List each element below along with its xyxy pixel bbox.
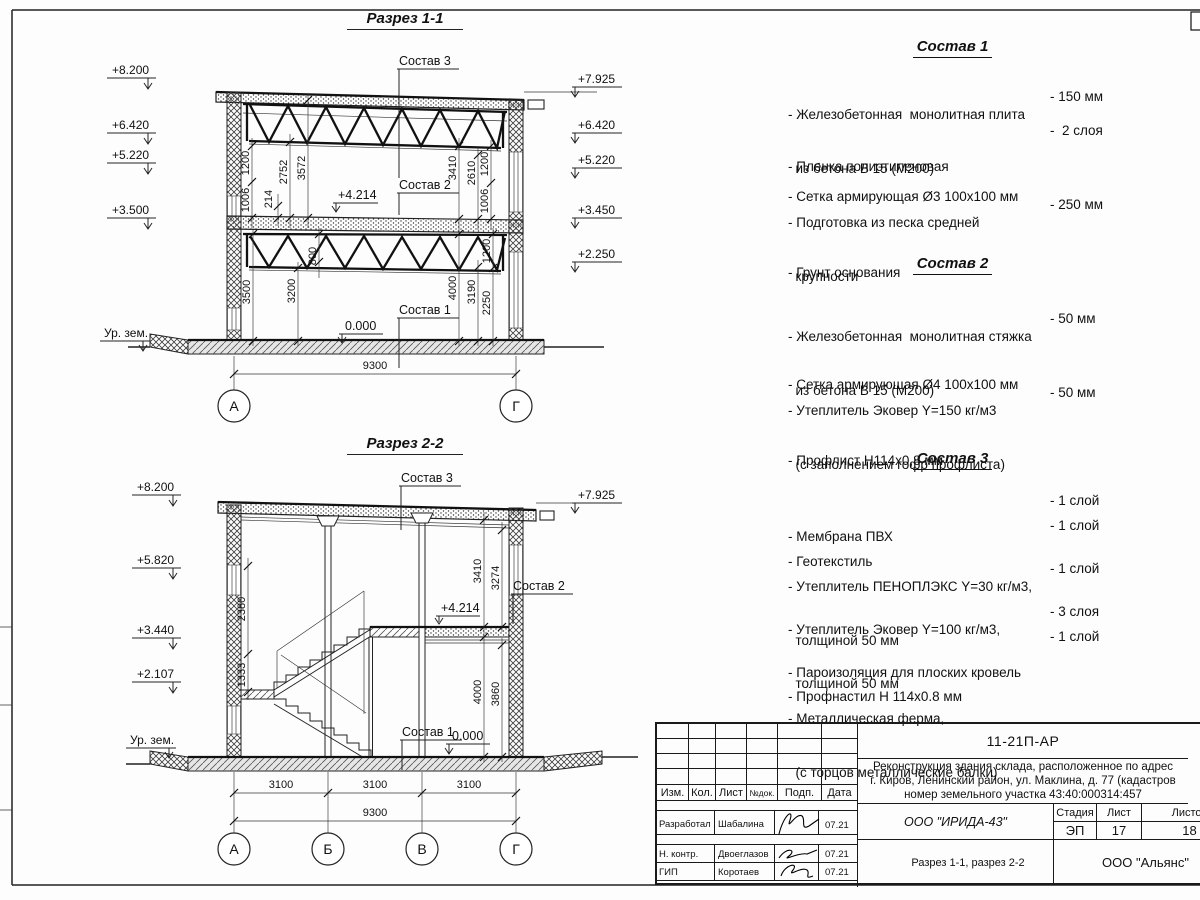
dim-label: 3500 xyxy=(241,280,253,304)
callout-sostav-2: Состав 2 xyxy=(399,178,451,192)
tb-col-kol: Кол. xyxy=(689,785,716,801)
elevation-mark: +5.820 xyxy=(137,553,174,567)
tb-col-list: Лист xyxy=(716,785,747,801)
tb-doc-number: 11-21П-АР xyxy=(858,724,1188,759)
tb-date-1: 07.21 xyxy=(819,811,857,835)
tb-sheet-title: Разрез 1-1, разрез 2-2 xyxy=(858,840,1054,885)
tb-role-2: Н. контр. xyxy=(657,845,715,863)
elevation-mark: +2.250 xyxy=(578,247,615,261)
title-block: Изм. Кол. Лист №док. Подп. Дата Разработ… xyxy=(655,722,1200,885)
axis-bubble-g: Г xyxy=(512,841,520,857)
tb-company: ООО "Альянс" xyxy=(1054,840,1200,885)
elevation-mark: +8.200 xyxy=(137,480,174,494)
dim-label: 2250 xyxy=(481,291,493,315)
signature-1 xyxy=(775,806,821,844)
elevation-mark: +5.220 xyxy=(578,153,615,167)
dim-label: 800 xyxy=(307,247,319,265)
elevation-mark: +2.107 xyxy=(137,667,174,681)
section-1-bottom-dims: 9300 А Г xyxy=(218,356,532,422)
elevation-mark: +3.440 xyxy=(137,623,174,637)
dim-overall: 9300 xyxy=(363,360,387,372)
composition-3-heading: Состав 3 xyxy=(780,450,1125,470)
staircase xyxy=(241,591,371,762)
dim-label: 2752 xyxy=(278,160,290,184)
elevation-mark: +6.420 xyxy=(578,118,615,132)
level-label: +4.214 xyxy=(441,601,480,615)
elevation-mark: +5.220 xyxy=(112,148,149,162)
dim-label: 2610 xyxy=(466,161,478,185)
section-2-floor xyxy=(126,751,638,771)
elevation-mark: +3.450 xyxy=(578,203,615,217)
axis-bubble-g: Г xyxy=(512,398,520,414)
level-label: +4.214 xyxy=(338,188,377,202)
ground-level-label: Ур. зем. xyxy=(130,733,174,747)
section-2-bottom-dims: 3100 3100 3100 9300 А Б В Г xyxy=(218,772,532,865)
dim-label: 3100 xyxy=(269,779,293,791)
dim-label: 4000 xyxy=(447,276,459,300)
axis-bubble-a: А xyxy=(229,398,239,414)
elevation-mark: +7.925 xyxy=(578,72,615,86)
section-1-elevations-left: +8.200 +6.420 +5.220 +3.500 Ур. зем. xyxy=(100,63,156,351)
tb-date-3: 07.21 xyxy=(819,863,857,881)
dim-label: 1200 xyxy=(481,239,493,263)
dim-label: 2380 xyxy=(236,597,248,621)
tb-col-data: Дата xyxy=(822,785,857,801)
elevation-mark: +8.200 xyxy=(112,63,149,77)
tb-stage-value: ЭП xyxy=(1054,822,1097,840)
dim-label: 1006 xyxy=(479,189,491,213)
axis-bubble-a: А xyxy=(229,841,239,857)
tb-name-3: Коротаев xyxy=(715,863,775,881)
elevation-mark: +6.420 xyxy=(112,118,149,132)
section-1-drawing: Разрез 1-1 xyxy=(100,10,622,422)
callout-sostav-2: Состав 2 xyxy=(513,579,565,593)
dim-label: 214 xyxy=(263,190,275,208)
tb-org: ООО "ИРИДА-43" xyxy=(858,804,1054,840)
section-2-title: Разрез 2-2 xyxy=(366,435,444,452)
tb-role-1: Разработал xyxy=(657,811,715,835)
level-label: 0.000 xyxy=(345,319,376,333)
callout-sostav-3: Состав 3 xyxy=(401,471,453,485)
tb-project-name: Реконструкция здания склада, расположенн… xyxy=(858,759,1188,804)
level-label: 0.000 xyxy=(452,729,483,743)
dim-label: 1006 xyxy=(240,188,252,212)
dim-label: 3100 xyxy=(363,779,387,791)
section-1-dims-right: 3410 2610 1200 1006 4000 3190 1200 2250 xyxy=(447,138,497,346)
callout-sostav-1: Состав 1 xyxy=(399,303,451,317)
dim-label: 3100 xyxy=(457,779,481,791)
tb-name-2: Двоеглазов xyxy=(715,845,775,863)
roof-truss xyxy=(243,104,507,151)
elevation-mark: +3.500 xyxy=(112,203,149,217)
section-2-elevations-left: +8.200 +5.820 +3.440 +2.107 Ур. зем. xyxy=(126,480,181,758)
tb-name-1: Шабалина xyxy=(715,811,775,835)
dim-label: 3200 xyxy=(286,279,298,303)
section-1-title: Разрез 1-1 xyxy=(366,10,443,27)
tb-role-3: ГИП xyxy=(657,863,715,881)
tb-sheets-label: Листов xyxy=(1142,804,1200,822)
tb-date-2: 07.21 xyxy=(819,845,857,863)
section-1-elevations-right: +7.925 +6.420 +5.220 +3.450 +2.250 xyxy=(571,72,622,272)
dim-label: 3860 xyxy=(490,682,502,706)
dim-label: 3410 xyxy=(472,559,484,583)
floor-truss xyxy=(243,234,507,274)
ground-level-label: Ур. зем. xyxy=(104,326,148,340)
tb-col-podp: Подп. xyxy=(778,785,822,801)
signature-2 xyxy=(773,842,821,884)
tb-stage-label: Стадия xyxy=(1054,804,1097,822)
axis-bubble-v: В xyxy=(417,841,426,857)
dim-label: 1333 xyxy=(236,663,248,687)
drawing-sheet: Разрез 1-1 xyxy=(0,0,1200,900)
callout-sostav-3: Состав 3 xyxy=(399,54,451,68)
section-2-elevations-right: +7.925 xyxy=(571,488,622,513)
composition-1-heading: Состав 1 xyxy=(780,38,1125,58)
composition-lists: Состав 1 - Железобетонная монолитная пли… xyxy=(780,0,1200,720)
dim-label: 3190 xyxy=(466,280,478,304)
axis-bubble-b: Б xyxy=(323,841,332,857)
callout-sostav-1: Состав 1 xyxy=(402,725,454,739)
tb-col-ndok: №док. xyxy=(747,785,778,801)
dim-label: 3274 xyxy=(490,566,502,590)
section-1-floor xyxy=(128,334,604,354)
tb-col-izm: Изм. xyxy=(657,785,689,801)
elevation-mark: +7.925 xyxy=(578,488,615,502)
tb-sheet-value: 17 xyxy=(1097,822,1142,840)
dim-label: 1200 xyxy=(240,151,252,175)
dim-label: 4000 xyxy=(472,680,484,704)
tb-sheet-label: Лист xyxy=(1097,804,1142,822)
dim-label: 3410 xyxy=(447,156,459,180)
composition-2-heading: Состав 2 xyxy=(780,255,1125,275)
dim-label: 3572 xyxy=(296,156,308,180)
dim-overall: 9300 xyxy=(363,807,387,819)
tb-sheets-value: 18 xyxy=(1142,822,1200,840)
dim-label: 1200 xyxy=(479,152,491,176)
section-2-drawing: Разрез 2-2 xyxy=(126,435,638,865)
